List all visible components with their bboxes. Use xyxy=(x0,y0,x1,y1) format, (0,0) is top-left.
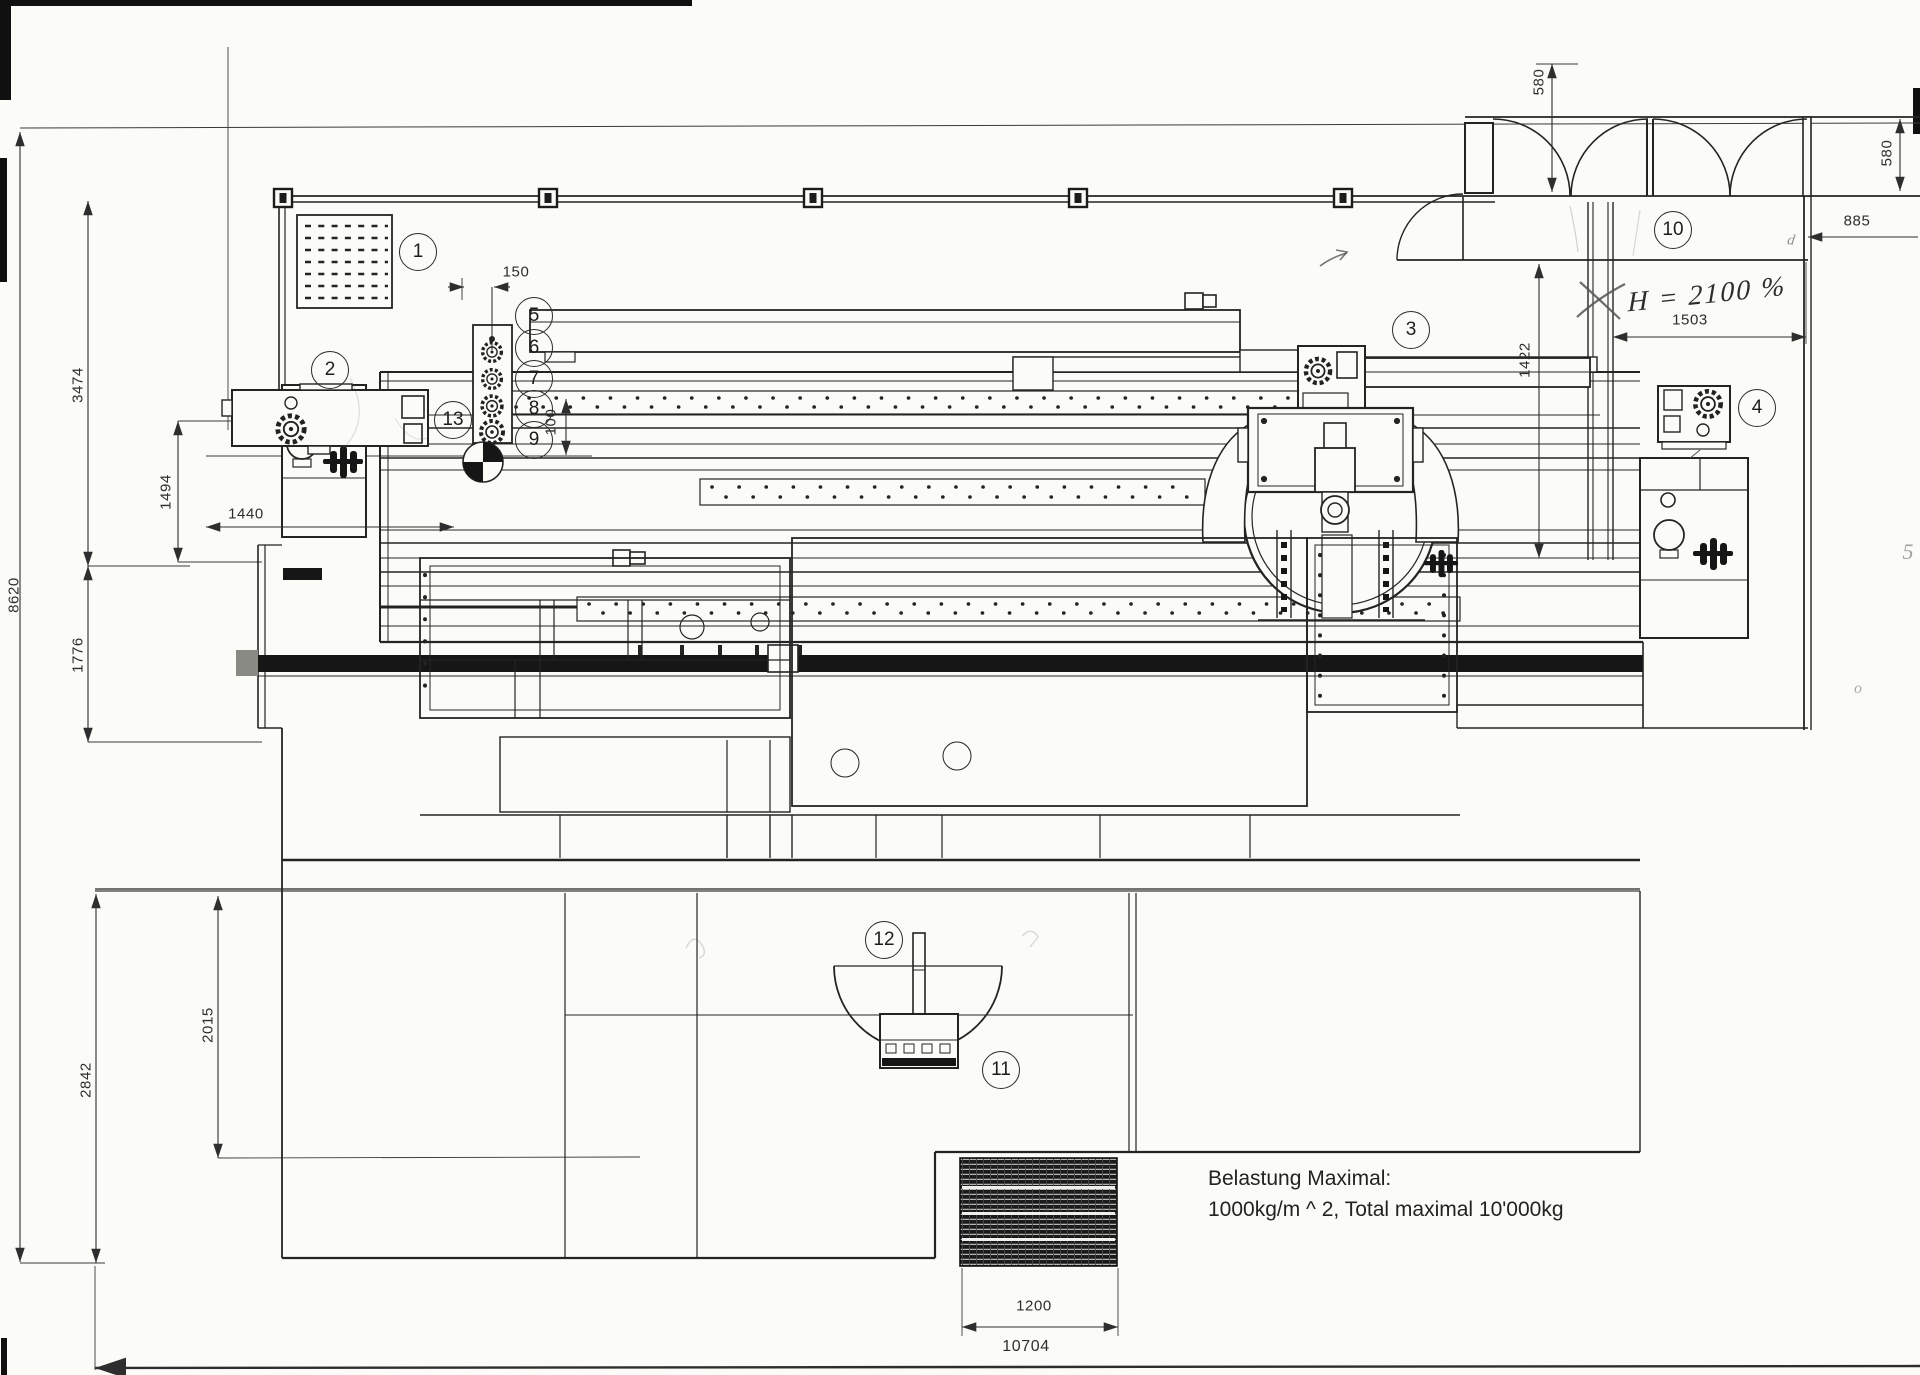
callout-number: 7 xyxy=(529,368,540,390)
origin-marker-icon xyxy=(463,442,503,482)
dim-8620: 8620 xyxy=(6,577,23,613)
callout-3: 3 xyxy=(1392,311,1430,349)
callout-number: 13 xyxy=(442,409,463,431)
drawing-linework xyxy=(0,0,1920,1375)
pencil-mark-5: 5 xyxy=(1903,539,1914,565)
callout-11: 11 xyxy=(982,1051,1020,1089)
dim-1776: 1776 xyxy=(70,637,87,673)
dim-885: 885 xyxy=(1844,213,1871,230)
callout-2: 2 xyxy=(311,351,349,389)
dim-3474: 3474 xyxy=(70,367,87,403)
pencil-mark-o: o xyxy=(1854,680,1862,698)
stair-grating xyxy=(960,1158,1117,1266)
dim-2015: 2015 xyxy=(200,1007,217,1043)
callout-number: 11 xyxy=(991,1059,1011,1081)
callout-13: 13 xyxy=(434,401,472,439)
callout-12: 12 xyxy=(865,921,903,959)
operator-pendant xyxy=(834,933,1002,1068)
electrical-cabinet xyxy=(222,384,428,454)
rotary-turret xyxy=(1203,408,1459,620)
door-swing-icon xyxy=(1493,119,1807,196)
callout-number: 12 xyxy=(873,929,894,951)
callout-number: 5 xyxy=(529,305,540,327)
pump-unit xyxy=(1658,386,1730,458)
fence-posts xyxy=(274,189,1352,207)
dim-10704: 10704 xyxy=(1002,1338,1050,1356)
dim-580-top: 580 xyxy=(1531,69,1548,96)
callout-9: 9 xyxy=(515,421,553,459)
blueprint-page: 8620 3474 1776 2842 2015 1494 1440 150 1… xyxy=(0,0,1920,1375)
dim-1440: 1440 xyxy=(228,506,264,523)
gear-strip xyxy=(473,287,512,443)
dim-2842: 2842 xyxy=(78,1062,95,1098)
callout-4: 4 xyxy=(1738,389,1776,427)
callout-number: 9 xyxy=(529,429,540,451)
callout-10: 10 xyxy=(1654,211,1692,249)
platform-structure xyxy=(95,538,1808,1258)
dim-1422: 1422 xyxy=(1517,342,1534,378)
load-note-line2: 1000kg/m ^ 2, Total maximal 10'000kg xyxy=(1208,1194,1564,1225)
load-capacity-note: Belastung Maximal: 1000kg/m ^ 2, Total m… xyxy=(1208,1163,1564,1225)
upper-beams xyxy=(530,293,1597,390)
callout-number: 3 xyxy=(1406,319,1417,341)
perforated-plate xyxy=(297,215,392,308)
callout-number: 6 xyxy=(529,337,540,359)
dim-1200: 1200 xyxy=(1016,1298,1052,1315)
callout-number: 1 xyxy=(413,241,424,263)
callout-number: 4 xyxy=(1752,397,1763,419)
callout-number: 8 xyxy=(529,398,540,420)
right-pedestal xyxy=(1640,458,1748,638)
callout-1: 1 xyxy=(399,233,437,271)
callout-number: 10 xyxy=(1662,219,1683,241)
load-note-line1: Belastung Maximal: xyxy=(1208,1163,1564,1194)
dim-1494: 1494 xyxy=(158,474,175,510)
dim-150: 150 xyxy=(503,264,530,281)
spindle-head-unit xyxy=(1298,346,1365,412)
dim-580-right: 580 xyxy=(1879,140,1896,167)
callout-number: 2 xyxy=(325,359,336,381)
